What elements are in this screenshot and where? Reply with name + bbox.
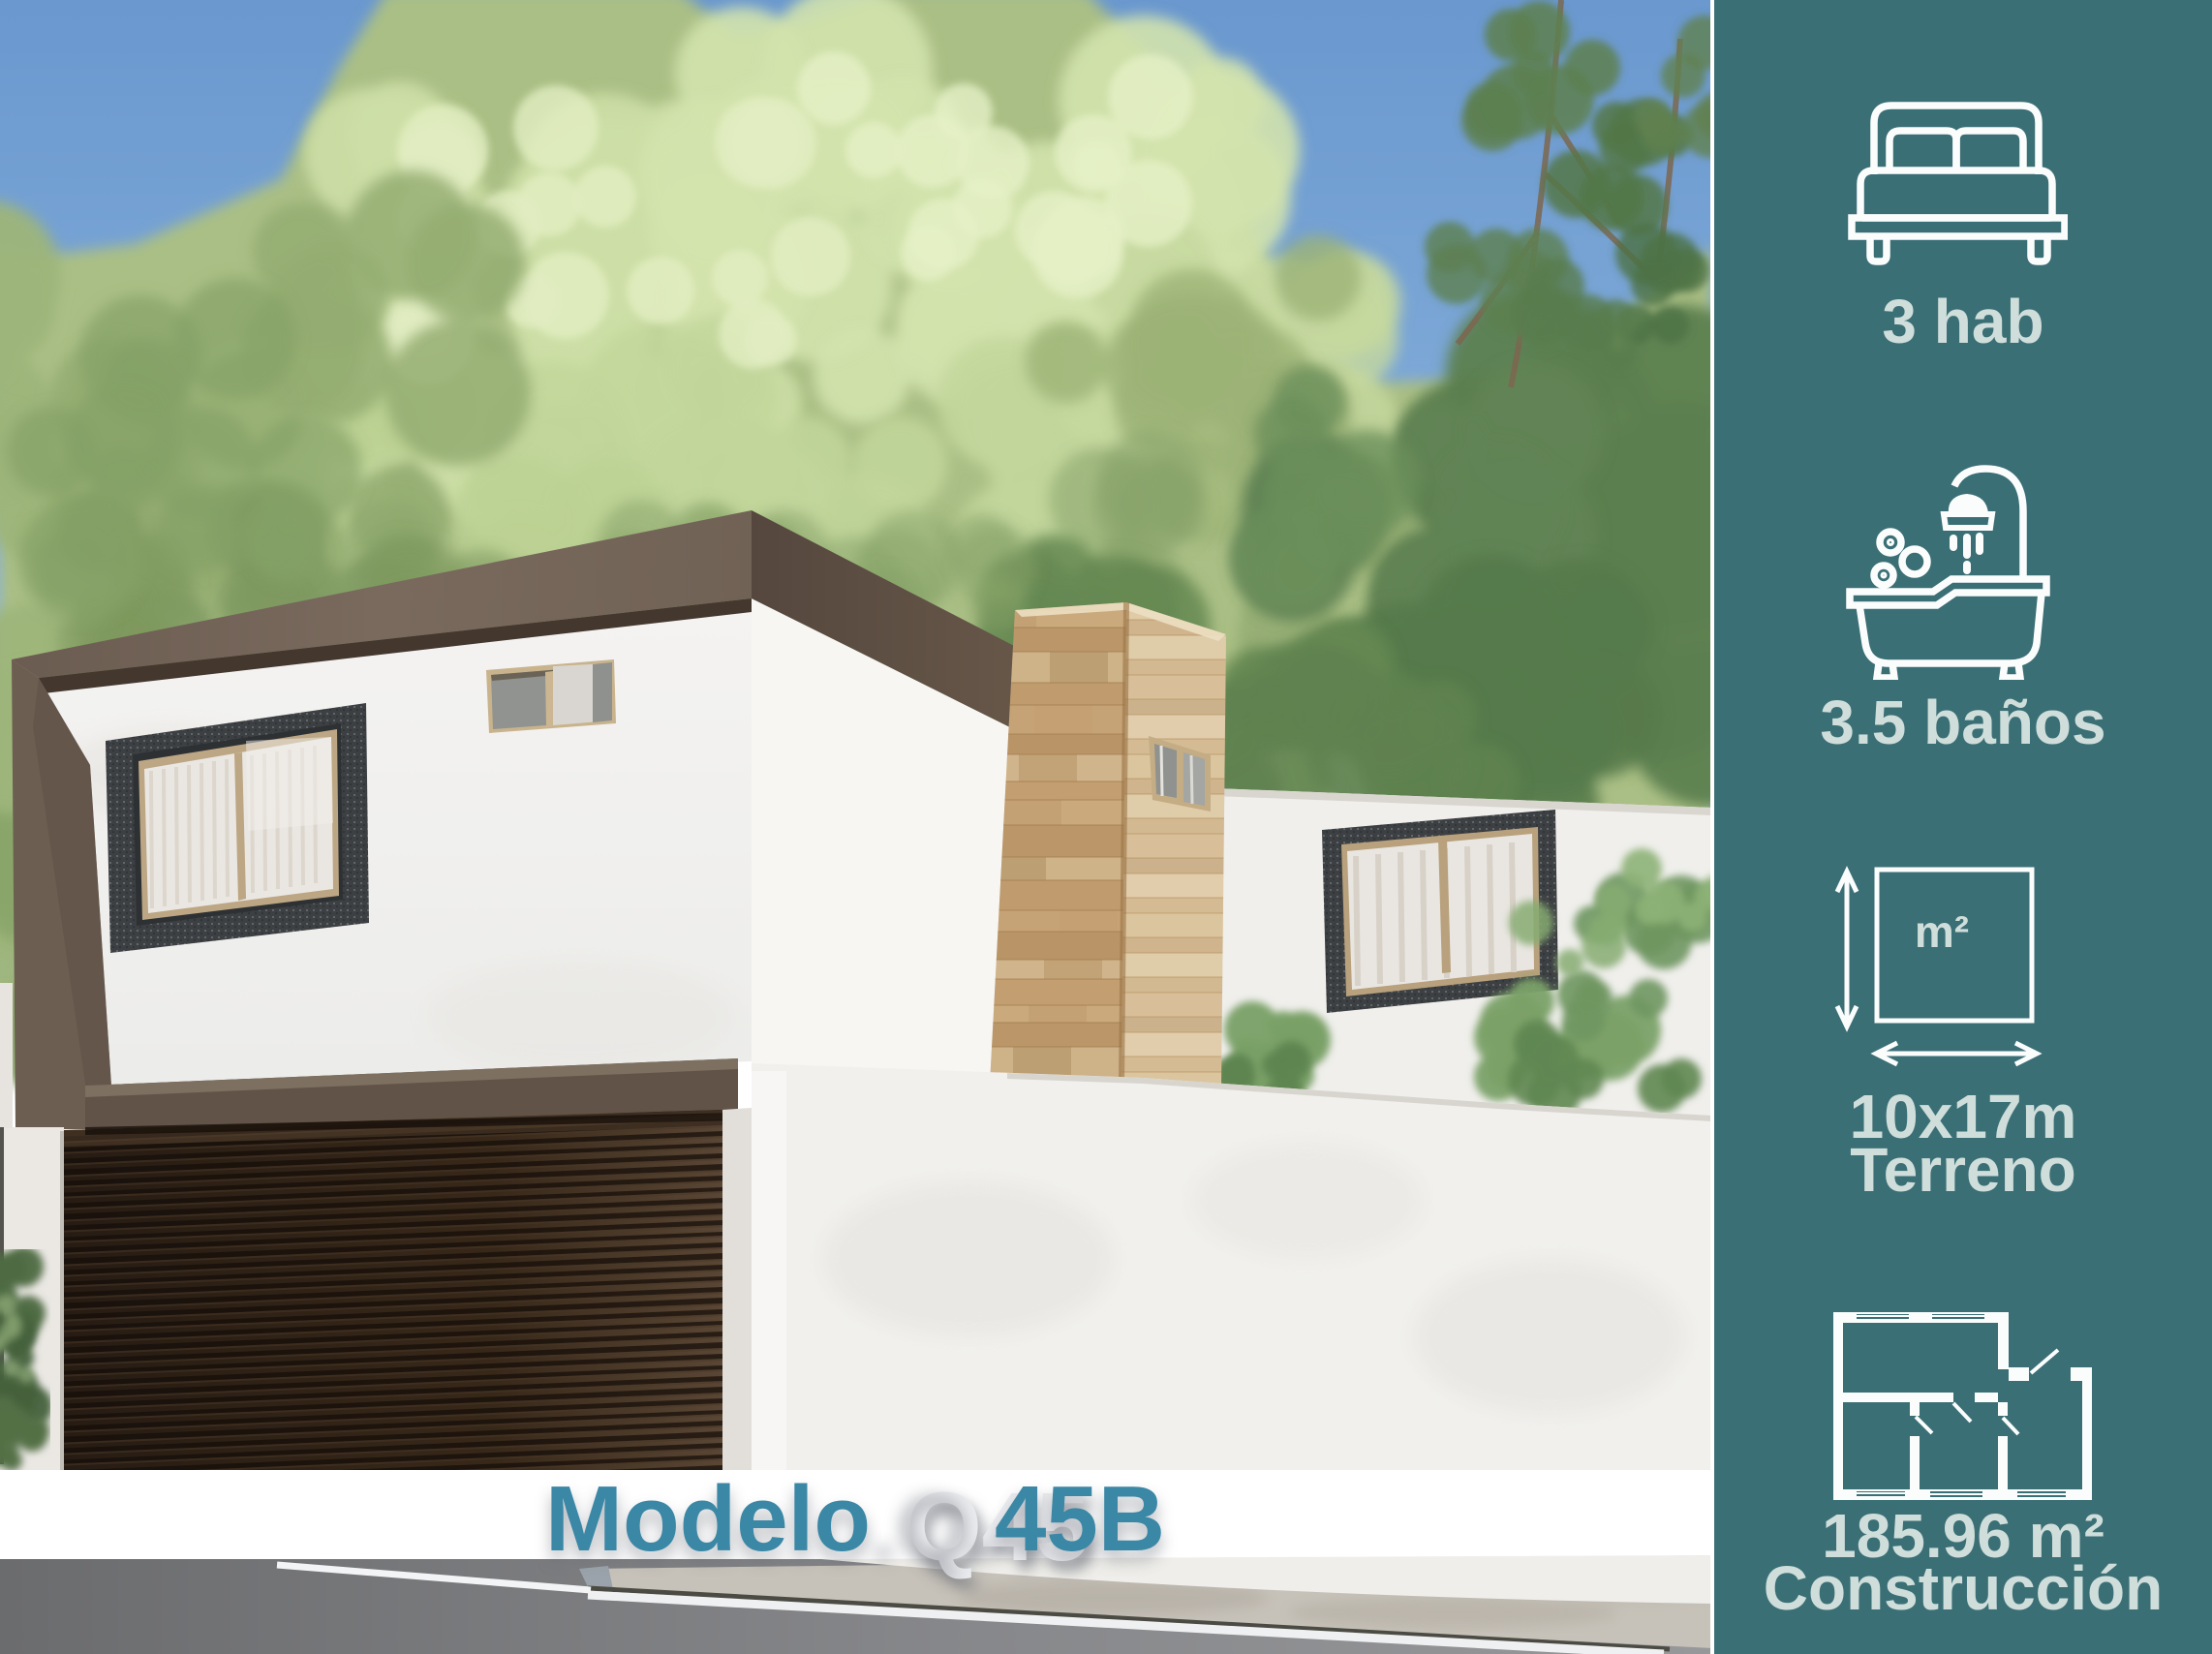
svg-text:m²: m² bbox=[1915, 906, 1969, 957]
